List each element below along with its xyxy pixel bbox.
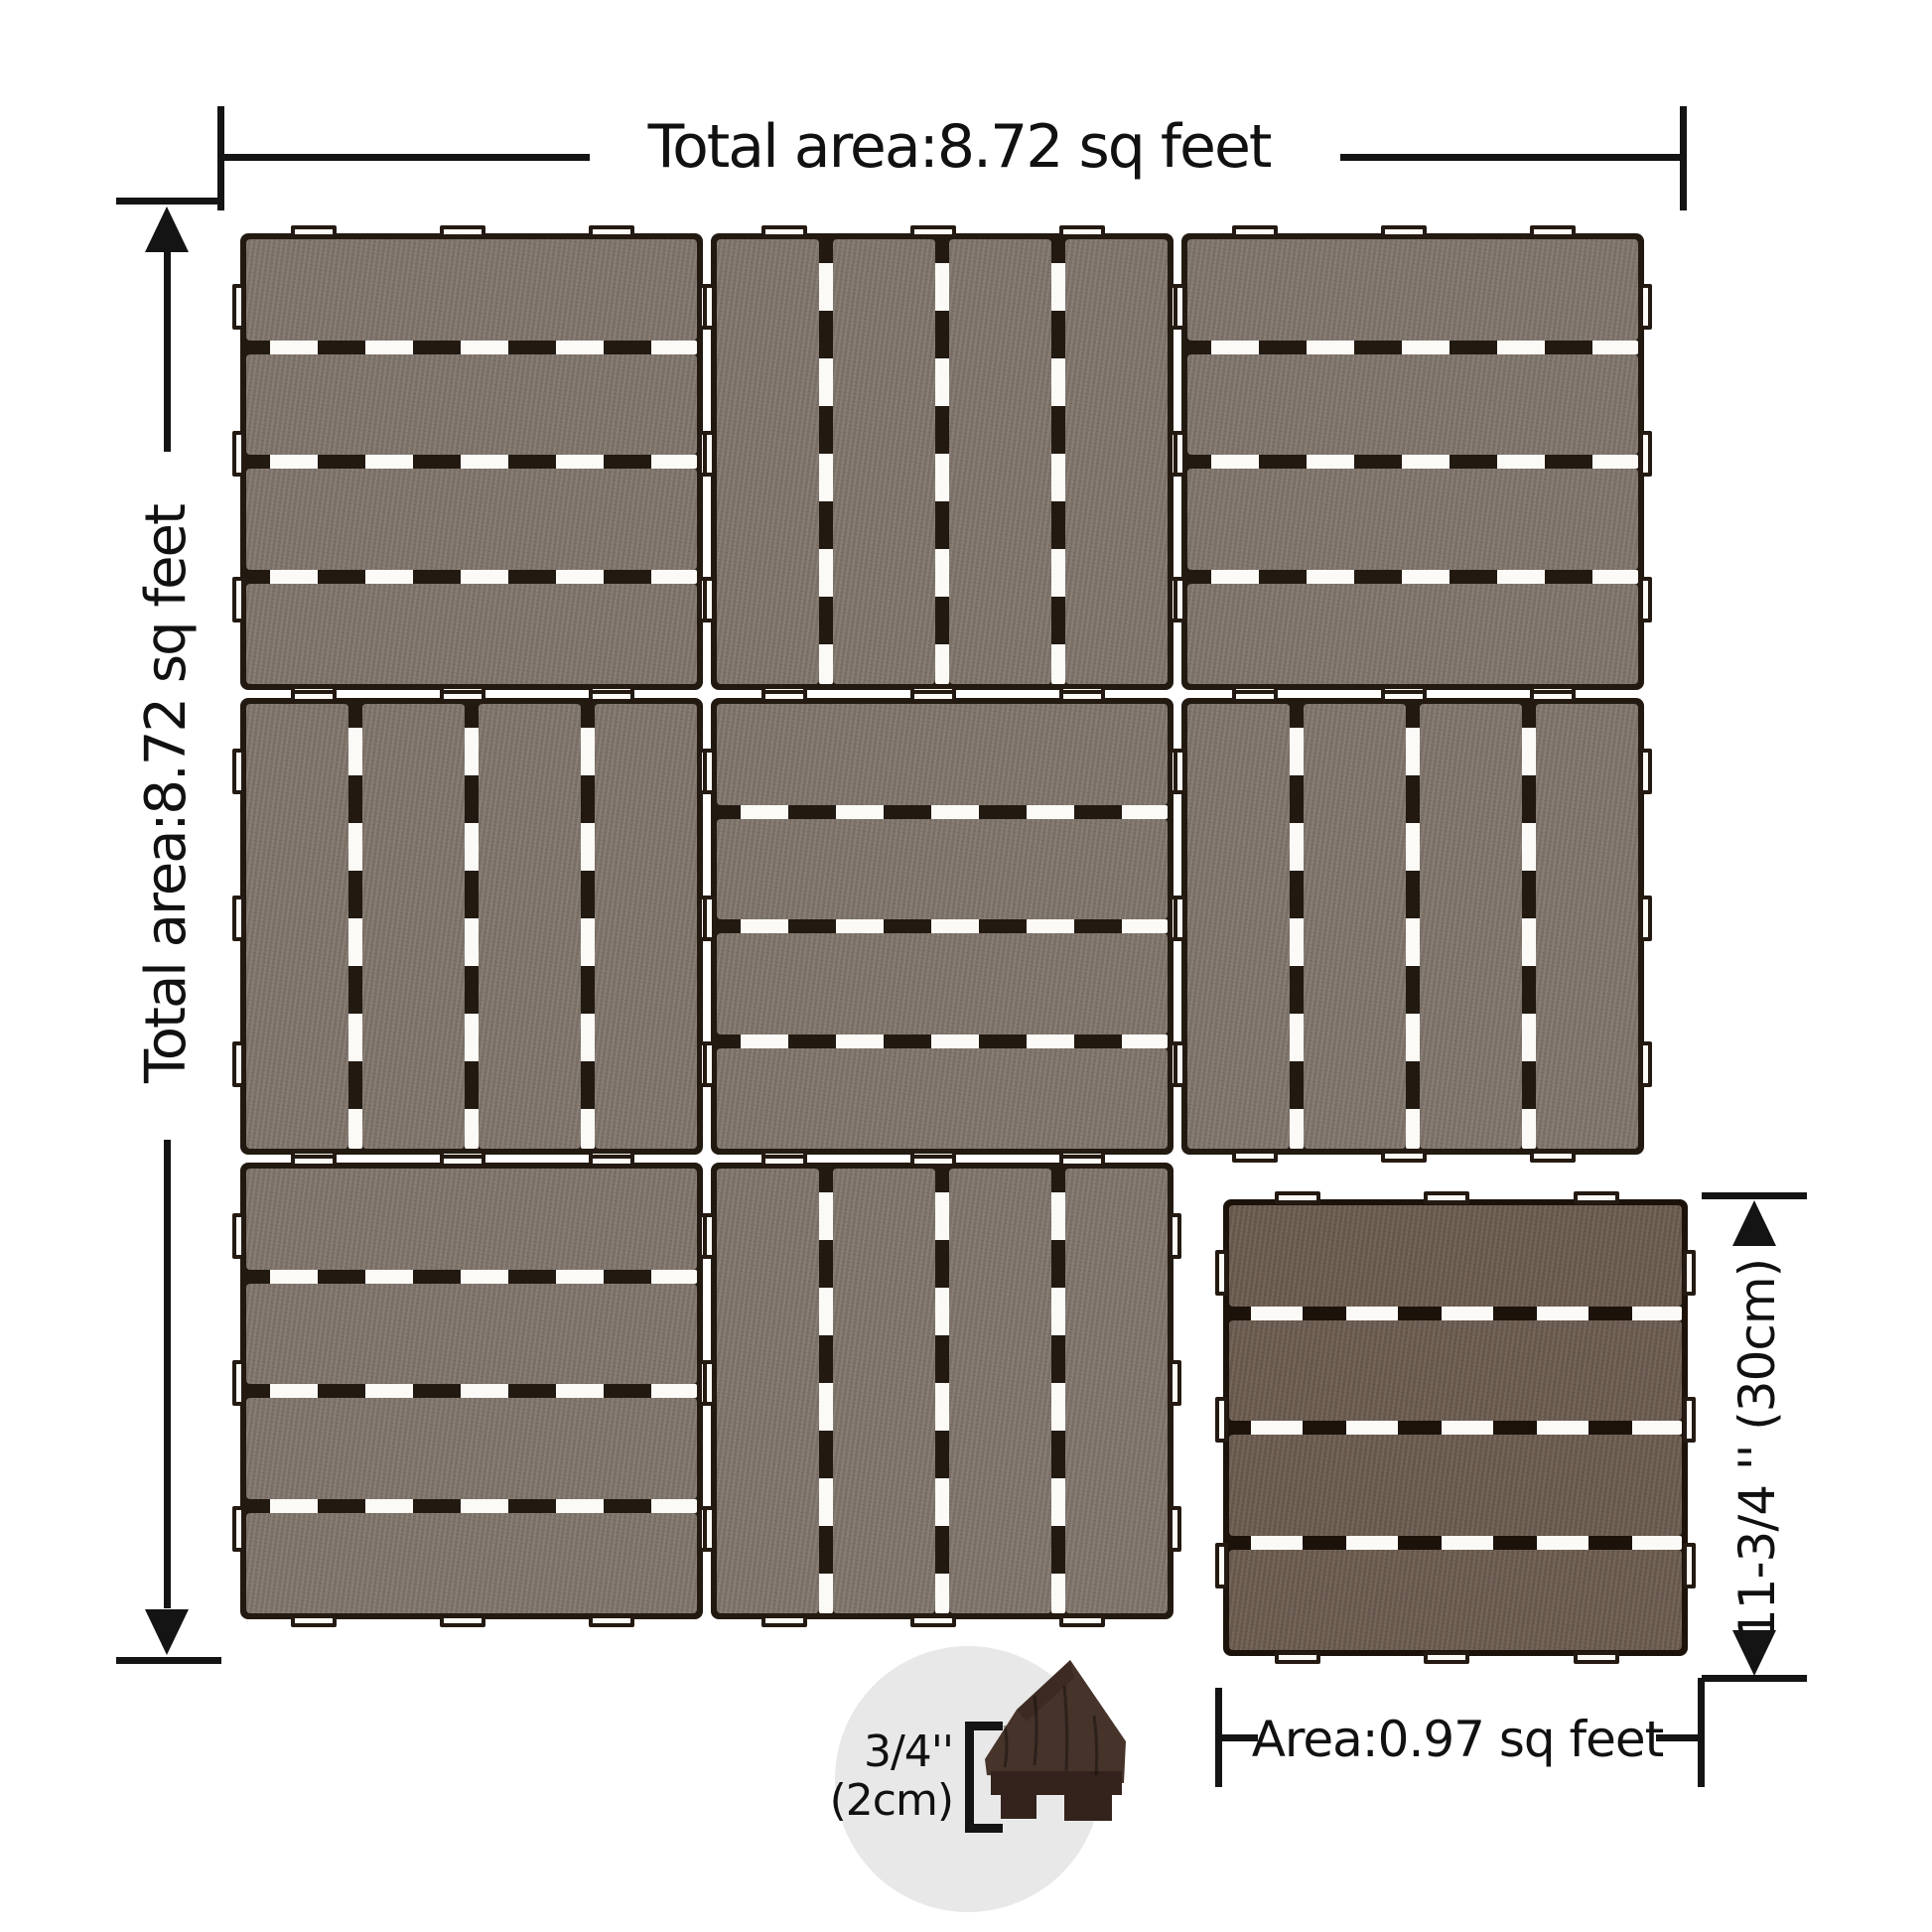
interlock-tab [291, 690, 337, 703]
interlock-tab [291, 1155, 337, 1168]
tile-gap [246, 1270, 697, 1284]
interlock-tab [589, 690, 634, 703]
tile-plank [1229, 1205, 1682, 1307]
area-dim-line-right [1656, 1734, 1702, 1741]
interlock-tab [291, 225, 337, 238]
interlock-tab [232, 1360, 245, 1406]
interlock-tab [1232, 225, 1278, 238]
interlock-tab [1683, 1250, 1696, 1296]
tile-gap [246, 341, 697, 354]
area-dim-right-bracket [1698, 1678, 1705, 1787]
interlock-tab [703, 896, 716, 941]
height-dim-up-arrow [1732, 1200, 1776, 1246]
interlock-tab [1059, 1614, 1105, 1627]
height-dim-bottom-tick [1702, 1675, 1807, 1682]
tile-planks [1229, 1205, 1682, 1650]
interlock-tab [761, 690, 807, 703]
interlock-tab [1173, 577, 1186, 622]
interlock-tab [1169, 1213, 1181, 1259]
deck-tile [1181, 233, 1644, 690]
interlock-tab [1381, 225, 1427, 238]
tile-gap [1187, 455, 1638, 469]
tile-plank [949, 1169, 1051, 1613]
interlock-tab [1530, 225, 1576, 238]
total-area-left-label: Total area:8.72 sq feet [139, 505, 195, 1083]
tile-plank [1065, 1169, 1168, 1613]
interlock-tab [703, 431, 716, 477]
tile-plank [1229, 1320, 1682, 1422]
deck-tile [240, 1163, 703, 1619]
tile-planks [717, 1169, 1168, 1613]
tile-gap [819, 1169, 833, 1613]
interlock-tab [589, 1155, 634, 1168]
interlock-tab [910, 1155, 956, 1168]
interlock-tab [1169, 1506, 1181, 1552]
tile-planks [1187, 239, 1638, 684]
interlock-tab [703, 1360, 716, 1406]
interlock-tab [1215, 1250, 1228, 1296]
thickness-cm: (2cm) [824, 1776, 953, 1825]
tile-gap [246, 455, 697, 469]
interlock-tab [1639, 284, 1652, 330]
deck-tile [1181, 698, 1644, 1155]
interlock-tab [910, 225, 956, 238]
interlock-tab [232, 1041, 245, 1087]
left-dim-bottom-tick [116, 1657, 221, 1664]
deck-tile [1223, 1199, 1688, 1656]
top-dim-line-left [220, 154, 590, 161]
left-dim-up-arrow [145, 207, 189, 252]
tile-plank [1187, 239, 1638, 341]
interlock-tab [1173, 749, 1186, 794]
tile-plank [246, 469, 697, 570]
tile-plank [1187, 469, 1638, 570]
tile-planks [717, 239, 1168, 684]
interlock-tab [440, 690, 485, 703]
height-dim-top-tick [1702, 1192, 1807, 1199]
interlock-tab [1574, 1651, 1619, 1664]
tile-plank [362, 704, 465, 1149]
tile-gap [1522, 704, 1536, 1149]
tile-gap [819, 239, 833, 684]
tile-planks [246, 1169, 697, 1613]
deck-tile [711, 233, 1173, 690]
interlock-tab [761, 1155, 807, 1168]
interlock-tab [1530, 1150, 1576, 1163]
interlock-tab [1059, 690, 1105, 703]
interlock-tab [703, 1213, 716, 1259]
tile-gap [1229, 1307, 1682, 1320]
single-tile [1223, 1199, 1688, 1656]
interlock-tab [1639, 749, 1652, 794]
interlock-tab [1173, 896, 1186, 941]
tile-plank [1065, 239, 1168, 684]
interlock-tab [1574, 1191, 1619, 1204]
tile-plank [833, 239, 935, 684]
tile-gap [246, 570, 697, 584]
tile-gap [581, 704, 595, 1149]
interlock-tab [1232, 1150, 1278, 1163]
interlock-tab [440, 1155, 485, 1168]
interlock-tab [1683, 1397, 1696, 1443]
interlock-tab [291, 1614, 337, 1627]
interlock-tab [1173, 284, 1186, 330]
tile-planks [1187, 704, 1638, 1149]
interlock-tab [1424, 1191, 1469, 1204]
tile-plank [479, 704, 581, 1149]
interlock-tab [1381, 1150, 1427, 1163]
tile-plank [1187, 354, 1638, 456]
deck-tile [240, 233, 703, 690]
tile-gap [1187, 570, 1638, 584]
interlock-tab [1059, 1155, 1105, 1168]
tile-plank [717, 819, 1168, 920]
interlock-tab [703, 577, 716, 622]
left-dim-line-upper [164, 248, 171, 452]
tile-plank [1187, 704, 1290, 1149]
interlock-tab [1173, 431, 1186, 477]
interlock-tab [232, 1213, 245, 1259]
interlock-tab [232, 749, 245, 794]
left-dim-down-arrow [145, 1609, 189, 1655]
interlock-tab [1424, 1651, 1469, 1664]
tile-plank [1304, 704, 1406, 1149]
tile-plank [717, 933, 1168, 1035]
interlock-tab [232, 1506, 245, 1552]
interlock-tab [910, 1614, 956, 1627]
thickness-inches: 3/4'' [824, 1727, 953, 1776]
tile-gap [1051, 239, 1065, 684]
tile-gap [1229, 1536, 1682, 1550]
interlock-tab [1530, 690, 1576, 703]
interlock-tab [703, 1506, 716, 1552]
tile-plank [949, 239, 1051, 684]
tile-corner-profile-graphic [975, 1656, 1134, 1851]
tile-planks [717, 704, 1168, 1149]
tile-plank [1229, 1550, 1682, 1651]
interlock-tab [1639, 431, 1652, 477]
tile-gap [935, 1169, 949, 1613]
interlock-tab [589, 1614, 634, 1627]
tile-plank [246, 239, 697, 341]
total-area-top-label: Total area:8.72 sq feet [648, 117, 1271, 177]
tile-plank [1420, 704, 1522, 1149]
tile-gap [246, 1384, 697, 1398]
tile-gap [717, 919, 1168, 933]
tile-planks [246, 239, 697, 684]
interlock-tab [1275, 1651, 1320, 1664]
deck-tile [240, 698, 703, 1155]
interlock-tab [1059, 225, 1105, 238]
interlock-tab [440, 1614, 485, 1627]
interlock-tab [1169, 1360, 1181, 1406]
interlock-tab [1215, 1543, 1228, 1588]
tile-gap [246, 1499, 697, 1513]
tile-gap [935, 239, 949, 684]
tile-plank [246, 1398, 697, 1499]
interlock-tab [232, 431, 245, 477]
tile-plank [717, 239, 819, 684]
tile-gap [1229, 1421, 1682, 1435]
deck-tile [711, 1163, 1173, 1619]
height-dim-down-arrow [1732, 1630, 1776, 1676]
thickness-label: 3/4'' (2cm) [824, 1727, 953, 1826]
tile-plank [246, 1284, 697, 1385]
interlock-tab [703, 284, 716, 330]
interlock-tab [232, 896, 245, 941]
tile-area-label: Area:0.97 sq feet [1252, 1715, 1664, 1764]
interlock-tab [910, 690, 956, 703]
tile-plank [717, 1169, 819, 1613]
tile-gap [1051, 1169, 1065, 1613]
tile-gap [1187, 341, 1638, 354]
interlock-tab [1215, 1397, 1228, 1443]
interlock-tab [1275, 1191, 1320, 1204]
tile-plank [833, 1169, 935, 1613]
tile-plank [246, 704, 348, 1149]
tile-gap [465, 704, 479, 1149]
deck-tile-dimension-diagram: Total area:8.72 sq feet Total area:8.72 … [0, 0, 1932, 1932]
tile-plank [595, 704, 697, 1149]
top-dim-line-right [1340, 154, 1683, 161]
tile-height-label: 11-3/4 '' (30cm) [1732, 1259, 1782, 1640]
interlock-tab [1173, 1041, 1186, 1087]
interlock-tab [440, 225, 485, 238]
left-dim-line-lower [164, 1140, 171, 1608]
interlock-tab [761, 1614, 807, 1627]
interlock-tab [232, 284, 245, 330]
tile-gap [348, 704, 362, 1149]
tile-plank [717, 704, 1168, 805]
tile-plank [1187, 584, 1638, 685]
interlock-tab [761, 225, 807, 238]
tile-gap [717, 1035, 1168, 1048]
interlock-tab [703, 749, 716, 794]
left-dim-top-tick [116, 198, 221, 205]
thickness-bracket-bar [965, 1722, 974, 1833]
tile-plank [246, 1513, 697, 1614]
tile-gap [1290, 704, 1304, 1149]
interlock-tab [1381, 690, 1427, 703]
interlock-tab [1639, 896, 1652, 941]
interlock-tab [1639, 577, 1652, 622]
interlock-tab [589, 225, 634, 238]
tile-gap [717, 805, 1168, 819]
tile-plank [1229, 1435, 1682, 1536]
area-dim-left-bracket [1215, 1688, 1222, 1787]
deck-tile [711, 698, 1173, 1155]
tile-plank [246, 1169, 697, 1270]
interlock-tab [1639, 1041, 1652, 1087]
interlock-tab [703, 1041, 716, 1087]
tile-planks [246, 704, 697, 1149]
interlock-tab [232, 577, 245, 622]
interlock-tab [1232, 690, 1278, 703]
tile-gap [1406, 704, 1420, 1149]
tile-plank [246, 354, 697, 456]
tile-plank [1536, 704, 1638, 1149]
interlock-tab [1683, 1543, 1696, 1588]
tile-plank [717, 1048, 1168, 1150]
tile-plank [246, 584, 697, 685]
